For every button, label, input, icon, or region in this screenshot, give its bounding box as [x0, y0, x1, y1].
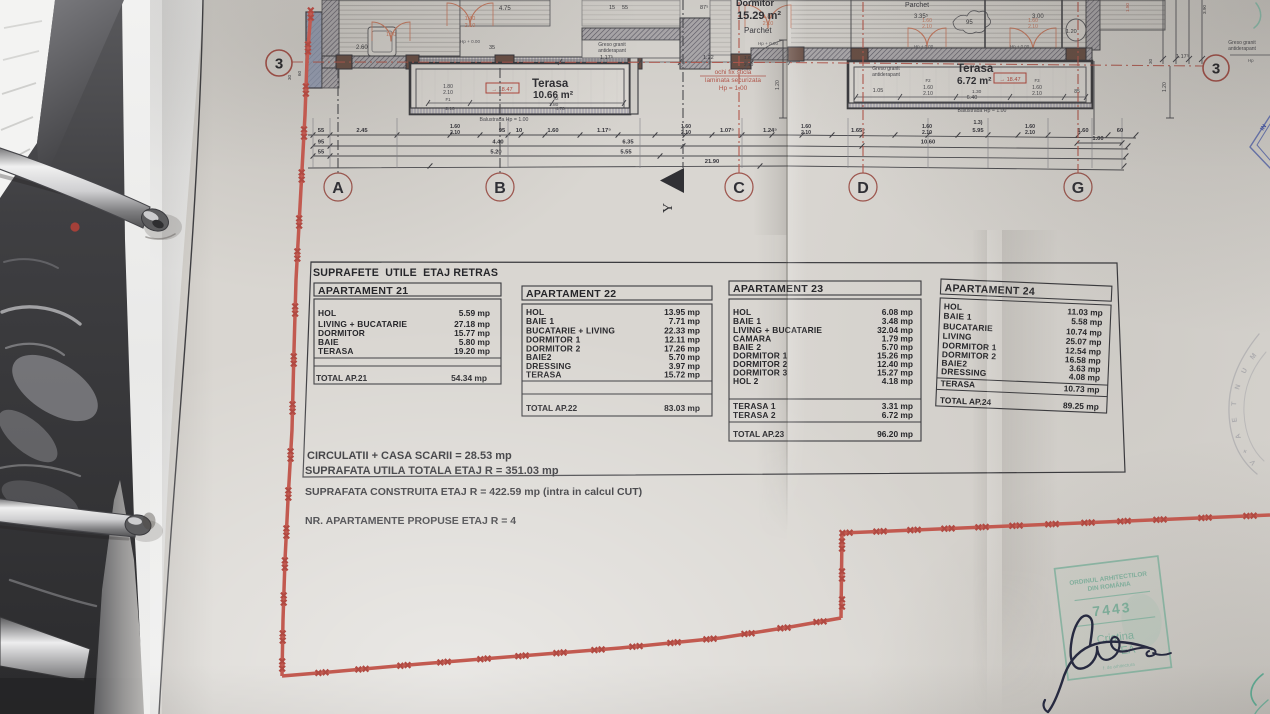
svg-text:T: T	[1231, 401, 1238, 406]
svg-text:A: A	[1235, 433, 1243, 440]
svg-text:U: U	[1241, 367, 1250, 375]
svg-text:E: E	[1231, 417, 1239, 423]
svg-text:M: M	[1249, 352, 1258, 361]
svg-text:+: +	[1242, 447, 1250, 454]
svg-text:V: V	[1249, 458, 1258, 466]
svg-text:N: N	[1234, 384, 1242, 391]
